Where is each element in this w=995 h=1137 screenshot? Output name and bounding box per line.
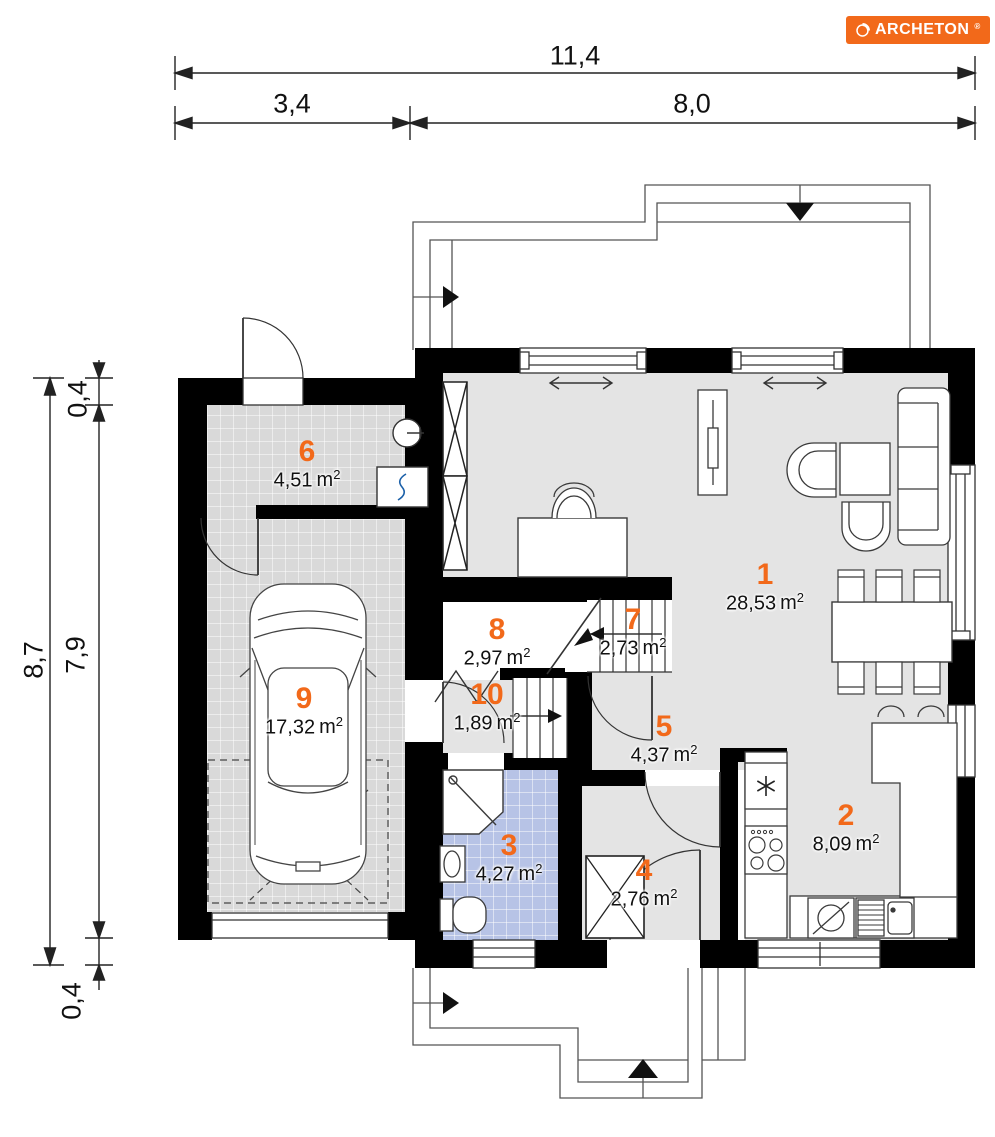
dim-side-top: 0,4	[63, 380, 94, 418]
kitchen-fridge	[745, 763, 787, 809]
floor-plan-drawing	[0, 0, 995, 1137]
window-bottom-kitchen	[758, 940, 880, 968]
terrace-top	[413, 185, 930, 350]
dim-top-total: 11,4	[550, 41, 601, 72]
office-chair	[552, 483, 596, 518]
tv-cabinet	[698, 390, 727, 495]
armchair	[787, 443, 836, 497]
dim-top-right: 8,0	[673, 89, 711, 120]
wardrobe	[586, 856, 644, 938]
window-top-left	[520, 348, 646, 373]
logo-reg-mark: ®	[974, 22, 980, 31]
garage-car	[240, 584, 376, 884]
entry-arrow-left-bottom	[443, 992, 459, 1014]
floor-plan-page: ARCHETON® 11,4 3,4 8,0 8,7 0,4 7,9 0,4 1…	[0, 0, 995, 1137]
archeton-logo-icon	[855, 23, 870, 38]
dining-table	[832, 602, 952, 662]
logo-text: ARCHETON	[875, 21, 969, 39]
garage-door-opening	[212, 913, 388, 938]
window-bottom-bath	[473, 940, 535, 968]
washbasin	[440, 846, 465, 882]
roof-slope-arrow	[786, 203, 814, 221]
side-table	[840, 443, 890, 495]
kitchen-stove	[745, 826, 787, 874]
terrace-bottom	[413, 968, 745, 1098]
chair-small	[842, 502, 890, 551]
entry-arrow-top	[443, 286, 459, 308]
entrance-door	[243, 318, 303, 378]
desk	[518, 518, 627, 577]
entrance-door-opening	[243, 378, 303, 405]
sofa	[898, 388, 950, 545]
dim-top-left: 3,4	[273, 89, 311, 120]
kitchen-sink	[856, 898, 914, 938]
dim-side-bottom: 0,4	[57, 982, 88, 1020]
toilet	[440, 897, 486, 933]
archeton-logo: ARCHETON®	[846, 16, 990, 44]
chimney-shafts	[443, 382, 467, 570]
window-top-right	[732, 348, 843, 373]
dim-side-middle: 7,9	[61, 636, 92, 674]
boiler	[377, 467, 428, 507]
stairs-main	[547, 598, 672, 674]
entry-arrow-bottom	[628, 1059, 658, 1078]
stairs-entry-steps	[510, 678, 567, 758]
dim-side-total: 8,7	[19, 641, 50, 679]
